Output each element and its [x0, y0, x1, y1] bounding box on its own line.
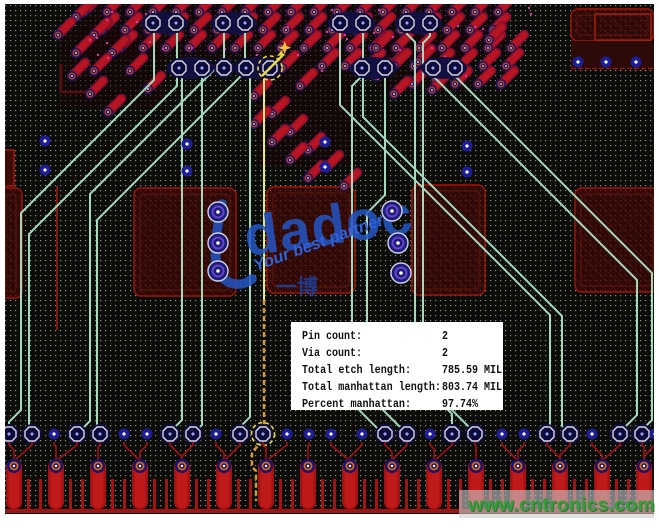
svg-text:Pin count:: Pin count:	[302, 329, 362, 343]
svg-text:2: 2	[442, 329, 448, 343]
svg-text:Percent manhattan:: Percent manhattan:	[302, 397, 411, 411]
svg-text:一博: 一博	[276, 275, 318, 299]
svg-text:Total manhattan length:: Total manhattan length:	[302, 380, 441, 394]
svg-text:97.74%: 97.74%	[442, 397, 479, 411]
svg-text:www.cntronics.com: www.cntronics.com	[467, 494, 655, 516]
svg-text:Via count:: Via count:	[302, 346, 362, 360]
svg-text:785.59 MIL: 785.59 MIL	[442, 363, 502, 377]
svg-text:2: 2	[442, 346, 448, 360]
svg-text:Total etch length:: Total etch length:	[302, 363, 411, 377]
svg-text:803.74 MIL: 803.74 MIL	[442, 380, 502, 394]
